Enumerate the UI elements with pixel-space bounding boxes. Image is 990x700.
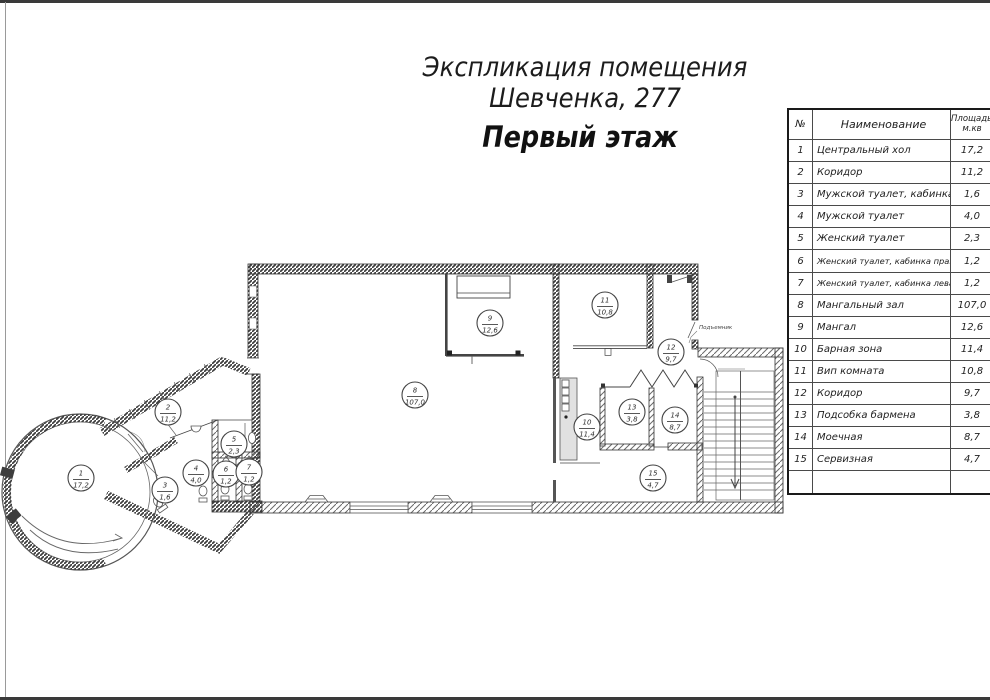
table-row: 5Женский туалет2,3 [788,228,990,250]
svg-text:1,2: 1,2 [243,476,255,484]
cell-name: Коридор [813,383,951,405]
table-row [788,471,990,494]
table-row: 7Женский туалет, кабинка левая1,2 [788,272,990,294]
entrance-door [667,275,692,283]
svg-text:6: 6 [224,466,229,474]
bar-counter [553,378,577,502]
cell-num: 5 [788,228,813,250]
room-label-7: 71,2 [236,459,262,485]
svg-text:14: 14 [671,412,680,420]
cell-name: Барная зона [813,338,951,360]
cell-num: 10 [788,338,813,360]
svg-text:4,0: 4,0 [190,477,202,485]
cell-num: 1 [788,140,813,162]
table-row: 2Коридор11,2 [788,162,990,184]
cell-num: 14 [788,427,813,449]
cell-name: Сервизная [813,449,951,471]
cell-name: Женский туалет, кабинка левая [813,272,951,294]
cell-area: 1,2 [951,250,990,272]
radiator-symbol [305,496,453,503]
vip-room [573,346,647,356]
room-label-10: 1011,4 [574,414,600,440]
cell-area: 3,8 [951,405,990,427]
cell-name: Мужской туалет [813,206,951,228]
svg-text:4: 4 [194,465,198,473]
cell-num: 13 [788,405,813,427]
table-row: 15Сервизная4,7 [788,449,990,471]
round-hall [0,414,158,570]
room-label-3: 31,6 [152,477,178,503]
cell-area: 4,7 [951,449,990,471]
room-label-6: 61,2 [213,461,239,487]
svg-text:13: 13 [628,404,637,412]
cell-area: 12,6 [951,316,990,338]
svg-text:1,2: 1,2 [220,478,232,486]
table-row: 9Мангал12,6 [788,316,990,338]
cell-name: Мужской туалет, кабинка [813,184,951,206]
svg-text:3,8: 3,8 [626,416,638,424]
cell-num: 11 [788,360,813,382]
folding-doors [601,370,698,388]
svg-text:12,6: 12,6 [482,327,498,335]
svg-text:1,6: 1,6 [159,494,171,502]
cell-area: 9,7 [951,383,990,405]
cell-name: Подсобка бармена [813,405,951,427]
table-row: 6Женский туалет, кабинка правая1,2 [788,250,990,272]
stair-direction-arrow [731,396,739,489]
cell-name: Мангал [813,316,951,338]
svg-text:107,0: 107,0 [405,399,426,407]
cell-num: 4 [788,206,813,228]
cell-name: Центральный хол [813,140,951,162]
svg-text:1: 1 [79,470,83,478]
header-num: № [788,109,813,140]
svg-text:9,7: 9,7 [665,356,677,364]
lift-annotation: Подъемник [699,325,733,331]
svg-text:8,7: 8,7 [669,424,681,432]
svg-text:17,2: 17,2 [73,482,89,490]
cell-num: 6 [788,250,813,272]
svg-text:7: 7 [247,464,252,472]
svg-text:10: 10 [583,419,592,427]
explication-table-body: 1Центральный хол17,22Коридор11,23Мужской… [788,140,990,494]
cell-num: 3 [788,184,813,206]
svg-text:2: 2 [166,404,171,412]
cell-area: 1,6 [951,184,990,206]
svg-text:10,8: 10,8 [597,309,613,317]
cell-area: 4,0 [951,206,990,228]
sink-icon [248,433,255,444]
svg-text:3: 3 [163,482,167,490]
cell-area: 11,4 [951,338,990,360]
svg-text:5: 5 [232,436,237,444]
header-area: Площадь, м.кв [951,109,990,140]
room-label-1: 117,2 [68,465,94,491]
table-row: 10Барная зона11,4 [788,338,990,360]
room-label-9: 912,6 [477,310,503,336]
cell-area: 107,0 [951,294,990,316]
stair-treads [704,371,774,500]
cell-name [813,471,951,494]
cell-area: 8,7 [951,427,990,449]
table-row: 12Коридор9,7 [788,383,990,405]
table-row: 11Вип комната10,8 [788,360,990,382]
cell-area: 2,3 [951,228,990,250]
explication-table: № Наименование Площадь, м.кв 1Центральны… [787,108,990,495]
table-row: 3Мужской туалет, кабинка1,6 [788,184,990,206]
svg-text:8: 8 [413,387,418,395]
table-row: 4Мужской туалет4,0 [788,206,990,228]
cell-area: 10,8 [951,360,990,382]
table-row: 14Моечная8,7 [788,427,990,449]
cell-name: Женский туалет, кабинка правая [813,250,951,272]
drawing-sheet: Экспликация помещения Шевченка, 277 Перв… [0,0,990,700]
room-label-8: 8107,0 [402,382,428,408]
table-row: 8Мангальный зал107,0 [788,294,990,316]
svg-text:9: 9 [488,315,493,323]
svg-text:15: 15 [649,470,658,478]
cell-area: 1,2 [951,272,990,294]
room-label-2: 211,2 [155,399,181,425]
table-row: 13Подсобка бармена3,8 [788,405,990,427]
room-label-11: 1110,8 [592,292,618,318]
header-name: Наименование [813,109,951,140]
room-label-5: 52,3 [221,431,247,457]
room-label-12: 129,7 [658,339,684,365]
cell-num: 12 [788,383,813,405]
cell-area: 11,2 [951,162,990,184]
cell-name: Коридор [813,162,951,184]
svg-text:2,3: 2,3 [228,448,239,456]
table-header-row: № Наименование Площадь, м.кв [788,109,990,140]
cell-num: 2 [788,162,813,184]
cell-name: Вип комната [813,360,951,382]
cell-num: 9 [788,316,813,338]
cell-area [951,471,990,494]
svg-text:11: 11 [601,297,610,305]
stair-door-swing [700,359,718,377]
stairwell [697,348,783,513]
cell-area: 17,2 [951,140,990,162]
room-label-13: 133,8 [619,399,645,425]
cell-num [788,471,813,494]
cell-name: Женский туалет [813,228,951,250]
svg-text:12: 12 [667,344,676,352]
cell-num: 15 [788,449,813,471]
room-label-14: 148,7 [662,407,688,433]
svg-text:11,2: 11,2 [160,416,176,424]
cell-name: Моечная [813,427,951,449]
cell-num: 7 [788,272,813,294]
cell-num: 8 [788,294,813,316]
table-row: 1Центральный хол17,2 [788,140,990,162]
svg-text:4,7: 4,7 [647,482,659,490]
svg-text:11,4: 11,4 [579,431,595,439]
room-label-4: 44,0 [183,460,209,486]
toilet-block [106,374,262,550]
room-label-15: 154,7 [640,465,666,491]
cell-name: Мангальный зал [813,294,951,316]
